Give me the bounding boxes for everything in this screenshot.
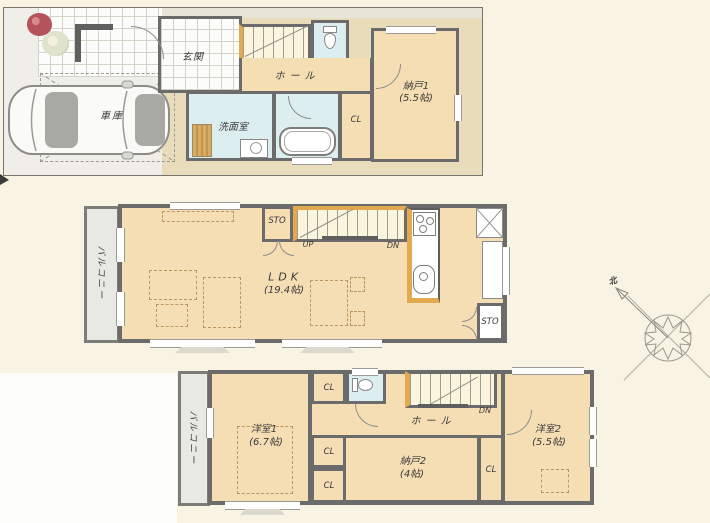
- pantry-counter: [482, 241, 503, 299]
- stove-burner: [416, 215, 424, 223]
- dn-label-f3: DN: [479, 407, 491, 415]
- porch-wall: [75, 24, 81, 62]
- garage-label: 車庫: [100, 112, 124, 122]
- balcony-label-f2: バルコニー: [96, 246, 109, 301]
- bathtub-inner: [284, 131, 331, 152]
- desk: [541, 469, 569, 493]
- wall: [501, 370, 505, 505]
- window: [225, 501, 300, 510]
- floorplan-sheet: { "document": {"type": "japanese-house-f…: [0, 0, 710, 523]
- window: [386, 26, 436, 34]
- window: [170, 202, 240, 210]
- bed: [237, 426, 293, 494]
- window: [116, 292, 125, 326]
- genkan-label: 玄関: [182, 53, 204, 63]
- window: [502, 247, 510, 295]
- up-label-f2: UP: [303, 241, 314, 249]
- sto-top-label: STO: [268, 217, 285, 226]
- rug: [156, 304, 188, 327]
- washing-machine-drum: [250, 142, 262, 154]
- closet-label-f1: CL: [351, 116, 362, 125]
- storage2-label: 納戸2: [400, 457, 426, 467]
- room2-size: (5.5帖): [532, 438, 566, 448]
- window: [206, 408, 214, 438]
- floor3-plan: バルコニー 洋室1 (6.7帖) CL DN ホール 納戸2 (4帖) CL C…: [0, 360, 710, 523]
- sto-bottom-label: STO: [481, 318, 498, 327]
- window: [352, 368, 378, 376]
- closet-bottom-label: CL: [324, 482, 335, 491]
- car-top-view: [6, 80, 172, 160]
- closet-top-label: CL: [324, 384, 335, 393]
- ldk-size: (19.4帖): [264, 286, 304, 296]
- toilet-bowl-f3: [358, 379, 373, 391]
- window: [292, 157, 332, 165]
- sink-faucet: [419, 272, 428, 281]
- tv-board: [162, 211, 234, 222]
- window: [282, 339, 382, 348]
- toilet-tank-f1: [323, 26, 337, 33]
- dining-table: [310, 280, 348, 326]
- closet-f1: [339, 91, 373, 161]
- compass: 北: [596, 260, 708, 364]
- window: [589, 407, 597, 435]
- fridge-cross: [476, 208, 503, 238]
- north-label: 北: [608, 277, 619, 288]
- flower-bush-white: [42, 31, 69, 56]
- window: [589, 439, 597, 467]
- window: [116, 228, 125, 262]
- chair: [350, 277, 365, 292]
- room2-label: 洋室2: [535, 425, 561, 435]
- closet-right-label: CL: [486, 466, 497, 475]
- chair: [350, 311, 365, 326]
- dn-label-f2: DN: [387, 242, 399, 250]
- hall-label-f1: ホール: [275, 72, 320, 82]
- stove-burner: [419, 225, 427, 233]
- storage1-size: (5.5帖): [399, 94, 433, 104]
- sofa: [149, 270, 197, 300]
- ldk-label: LDK: [268, 272, 302, 283]
- wood-deck: [192, 124, 212, 157]
- stair-handrail: [418, 404, 468, 408]
- storage1-label: 納戸1: [403, 82, 429, 92]
- hall-label-f3: ホール: [411, 417, 456, 427]
- window: [512, 367, 584, 375]
- kitchen-island: [203, 277, 241, 328]
- window: [150, 339, 255, 348]
- window-symbol: [175, 347, 230, 353]
- stair-handrail: [322, 236, 378, 240]
- closet-mid-label: CL: [324, 448, 335, 457]
- window-symbol: [240, 509, 285, 515]
- stairs-f3: [405, 371, 497, 408]
- stove-burner: [426, 217, 434, 225]
- washroom-label: 洗面室: [218, 123, 248, 133]
- floor1-plan: 車庫 玄関 UP ホール 納戸1 (5.5帖) 洗面室 CL: [0, 0, 492, 186]
- window-symbol: [300, 347, 355, 353]
- balcony-label-f3: バルコニー: [188, 411, 201, 466]
- window: [454, 95, 462, 121]
- storage2-size: (4帖): [400, 470, 424, 480]
